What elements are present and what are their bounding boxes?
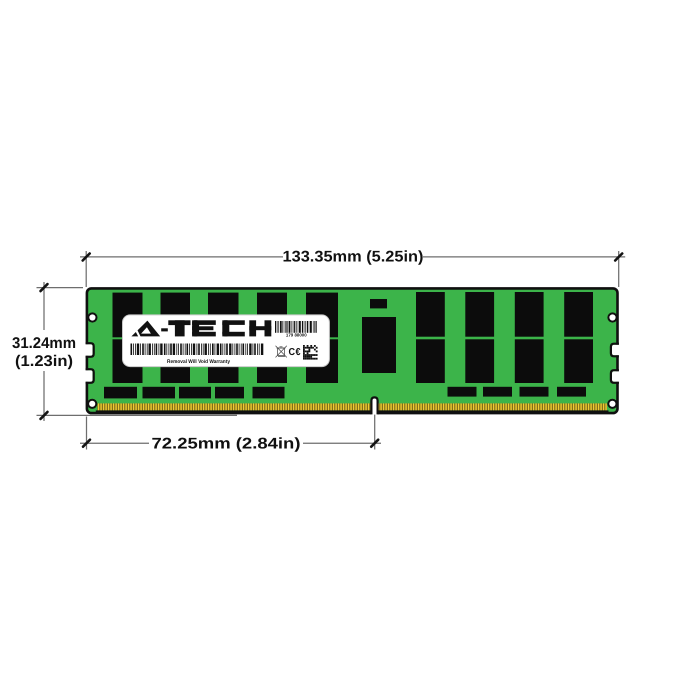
svg-text:133.35mm (5.25in): 133.35mm (5.25in): [283, 249, 424, 266]
svg-text:C€: C€: [289, 347, 302, 358]
svg-text:31.24mm: 31.24mm: [12, 335, 76, 352]
svg-text:72.25mm (2.84in): 72.25mm (2.84in): [152, 435, 301, 452]
svg-text:(1.23in): (1.23in): [15, 353, 73, 370]
svg-text:Removal Will Void Warranty: Removal Will Void Warranty: [167, 359, 230, 365]
svg-text:179 88000: 179 88000: [286, 333, 307, 338]
